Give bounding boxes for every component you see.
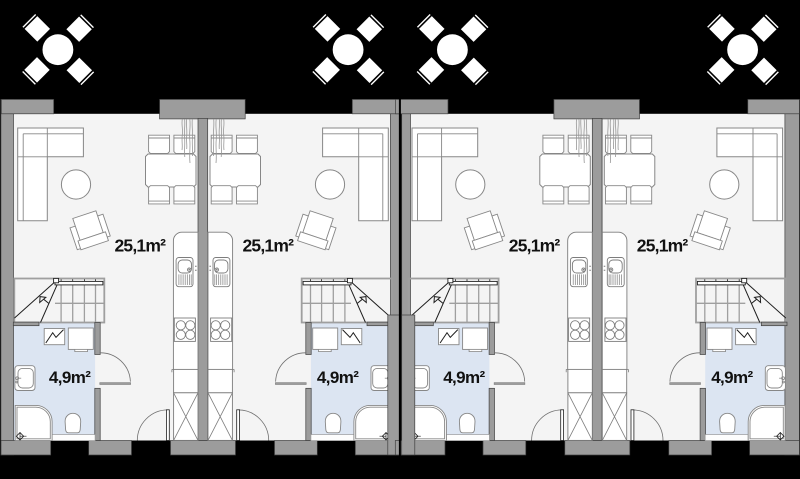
svg-text:4,9m²: 4,9m² [49, 368, 91, 387]
svg-text:4,9m²: 4,9m² [317, 368, 359, 387]
svg-text:25,1m²: 25,1m² [637, 235, 689, 255]
svg-text:25,1m²: 25,1m² [509, 235, 561, 255]
svg-text:25,1m²: 25,1m² [115, 235, 167, 255]
svg-text:4,9m²: 4,9m² [443, 368, 485, 387]
svg-text:4,9m²: 4,9m² [711, 368, 753, 387]
svg-text:25,1m²: 25,1m² [243, 235, 295, 255]
